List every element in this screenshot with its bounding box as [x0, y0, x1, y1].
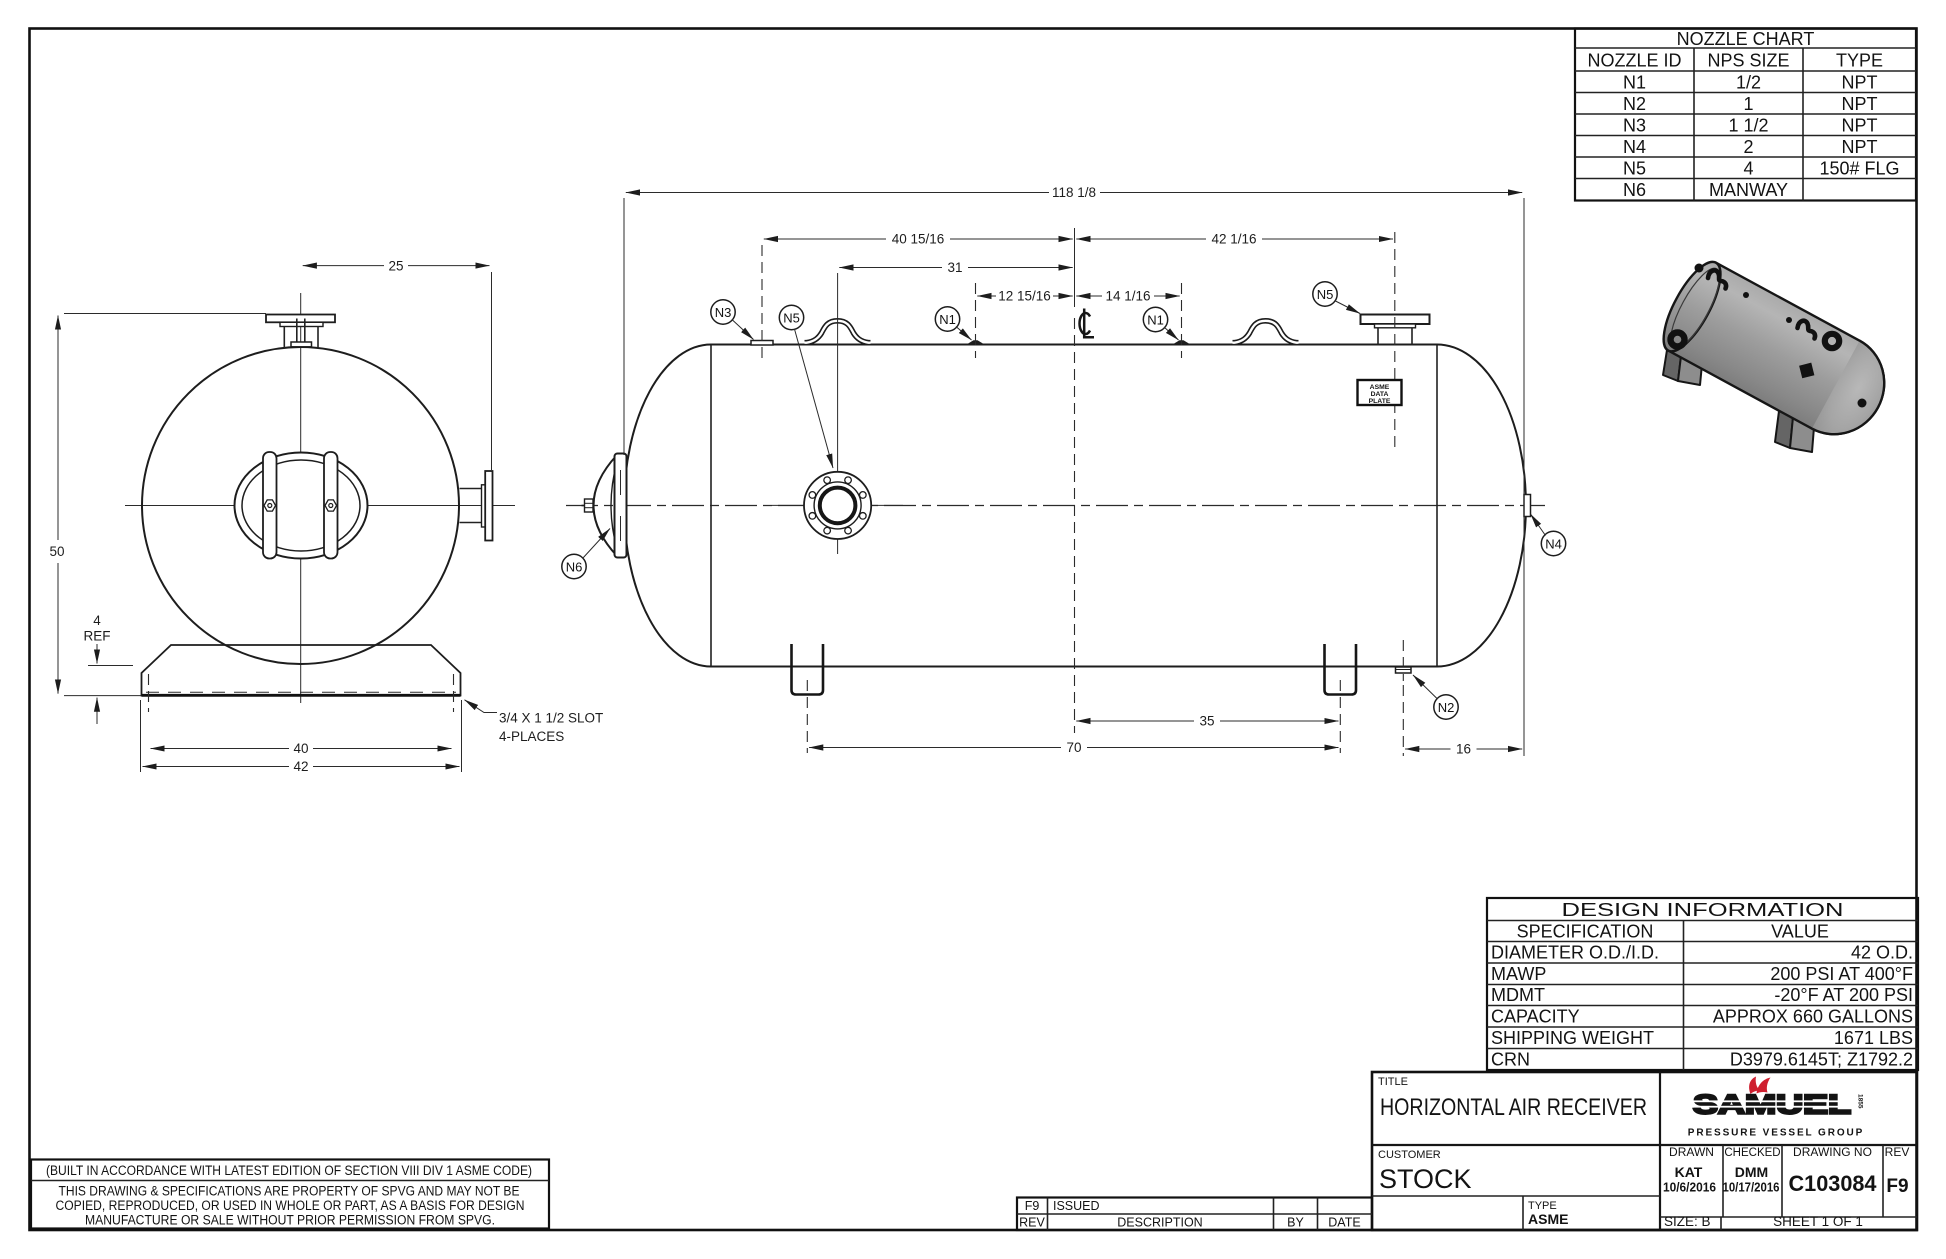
svg-text:REV: REV — [1019, 1216, 1045, 1230]
svg-text:16: 16 — [1456, 742, 1471, 757]
svg-text:SHEET 1 OF 1: SHEET 1 OF 1 — [1773, 1214, 1863, 1229]
svg-text:MAWP: MAWP — [1491, 964, 1546, 984]
svg-text:N3: N3 — [1623, 116, 1646, 136]
svg-text:DIAMETER O.D./I.D.: DIAMETER O.D./I.D. — [1491, 943, 1659, 963]
svg-text:(BUILT IN ACCORDANCE WITH LATE: (BUILT IN ACCORDANCE WITH LATEST EDITION… — [46, 1163, 532, 1178]
svg-text:N1: N1 — [939, 312, 956, 327]
svg-text:1: 1 — [1743, 94, 1753, 114]
svg-text:DRAWING NO: DRAWING NO — [1793, 1145, 1872, 1159]
svg-text:BY: BY — [1287, 1216, 1304, 1230]
svg-text:31: 31 — [947, 260, 962, 275]
svg-text:CHECKED: CHECKED — [1724, 1147, 1780, 1159]
svg-text:N1: N1 — [1147, 312, 1164, 327]
svg-text:3/4 X 1 1/2 SLOT: 3/4 X 1 1/2 SLOT — [499, 711, 603, 726]
svg-text:NPT: NPT — [1842, 94, 1878, 114]
svg-text:14 1/16: 14 1/16 — [1105, 289, 1150, 304]
svg-text:SAMUEL: SAMUEL — [1693, 1090, 1851, 1120]
svg-text:MDMT: MDMT — [1491, 985, 1545, 1005]
svg-text:CUSTOMER: CUSTOMER — [1378, 1149, 1441, 1161]
svg-text:APPROX 660 GALLONS: APPROX 660 GALLONS — [1713, 1007, 1913, 1027]
svg-text:NPT: NPT — [1842, 137, 1878, 157]
svg-text:N5: N5 — [1623, 159, 1646, 179]
svg-text:CAPACITY: CAPACITY — [1491, 1007, 1580, 1027]
svg-text:N3: N3 — [715, 305, 732, 320]
svg-text:ISSUED: ISSUED — [1053, 1199, 1100, 1213]
svg-text:TITLE: TITLE — [1378, 1076, 1408, 1088]
svg-text:N4: N4 — [1623, 137, 1646, 157]
svg-text:N4: N4 — [1545, 536, 1562, 551]
svg-text:REV: REV — [1885, 1145, 1910, 1159]
svg-text:2: 2 — [1743, 137, 1753, 157]
svg-text:F9: F9 — [1886, 1176, 1908, 1197]
svg-text:40: 40 — [293, 741, 308, 756]
svg-text:NPT: NPT — [1842, 73, 1878, 93]
svg-text:42 1/16: 42 1/16 — [1211, 232, 1256, 247]
svg-text:DATE: DATE — [1328, 1216, 1360, 1230]
svg-text:STOCK: STOCK — [1379, 1164, 1472, 1194]
svg-text:REF: REF — [84, 629, 111, 644]
svg-text:DATA: DATA — [1371, 391, 1389, 398]
svg-text:SPECIFICATION: SPECIFICATION — [1517, 922, 1654, 942]
svg-text:ASME: ASME — [1370, 384, 1390, 391]
svg-text:10/17/2016: 10/17/2016 — [1723, 1181, 1780, 1195]
svg-text:1855: 1855 — [1857, 1094, 1864, 1109]
svg-text:118 1/8: 118 1/8 — [1052, 185, 1096, 200]
svg-text:NOZZLE ID: NOZZLE ID — [1587, 51, 1681, 71]
svg-text:40 15/16: 40 15/16 — [892, 232, 945, 247]
svg-text:NPS SIZE: NPS SIZE — [1707, 51, 1789, 71]
svg-text:SHIPPING WEIGHT: SHIPPING WEIGHT — [1491, 1028, 1654, 1048]
svg-text:10/6/2016: 10/6/2016 — [1663, 1181, 1716, 1195]
svg-text:N1: N1 — [1623, 73, 1646, 93]
svg-text:NOZZLE CHART: NOZZLE CHART — [1677, 29, 1815, 49]
svg-text:4: 4 — [93, 613, 101, 628]
svg-text:1671 LBS: 1671 LBS — [1834, 1028, 1913, 1048]
svg-text:MANUFACTURE OR SALE WITHOUT PR: MANUFACTURE OR SALE WITHOUT PRIOR PERMIS… — [85, 1213, 495, 1228]
svg-text:N2: N2 — [1438, 700, 1455, 715]
svg-text:ASME: ASME — [1528, 1211, 1568, 1227]
svg-text:4: 4 — [1743, 159, 1753, 179]
svg-text:-20°F AT 200 PSI: -20°F AT 200 PSI — [1774, 985, 1913, 1005]
svg-text:4-PLACES: 4-PLACES — [499, 729, 564, 744]
svg-text:CRN: CRN — [1491, 1050, 1530, 1070]
svg-text:TYPE: TYPE — [1836, 51, 1883, 71]
svg-text:1 1/2: 1 1/2 — [1728, 116, 1768, 136]
svg-text:PLATE: PLATE — [1369, 398, 1391, 405]
svg-text:35: 35 — [1199, 714, 1214, 729]
svg-text:1/2: 1/2 — [1736, 73, 1761, 93]
svg-text:70: 70 — [1066, 740, 1081, 755]
svg-text:VALUE: VALUE — [1771, 922, 1829, 942]
svg-text:HORIZONTAL AIR RECEIVER: HORIZONTAL AIR RECEIVER — [1380, 1094, 1647, 1121]
svg-text:N5: N5 — [783, 310, 800, 325]
svg-text:DMM: DMM — [1735, 1164, 1768, 1180]
svg-text:C103084: C103084 — [1789, 1171, 1878, 1196]
svg-text:DESIGN INFORMATION: DESIGN INFORMATION — [1562, 900, 1844, 920]
svg-text:42: 42 — [293, 759, 308, 774]
svg-text:DRAWN: DRAWN — [1669, 1145, 1714, 1159]
svg-text:25: 25 — [388, 258, 403, 273]
svg-text:DESCRIPTION: DESCRIPTION — [1117, 1216, 1202, 1230]
svg-text:KAT: KAT — [1675, 1164, 1703, 1180]
svg-text:42 O.D.: 42 O.D. — [1851, 943, 1913, 963]
svg-text:200 PSI AT 400°F: 200 PSI AT 400°F — [1770, 964, 1913, 984]
svg-text:SIZE: B: SIZE: B — [1664, 1214, 1711, 1229]
svg-text:12 15/16: 12 15/16 — [998, 289, 1051, 304]
svg-text:150# FLG: 150# FLG — [1819, 159, 1899, 179]
svg-text:NPT: NPT — [1842, 116, 1878, 136]
svg-text:N5: N5 — [1317, 287, 1334, 302]
svg-text:50: 50 — [49, 544, 64, 559]
svg-text:N6: N6 — [1623, 180, 1646, 200]
svg-text:D3979.6145T; Z1792.2: D3979.6145T; Z1792.2 — [1730, 1050, 1913, 1070]
svg-text:PRESSURE VESSEL GROUP: PRESSURE VESSEL GROUP — [1688, 1128, 1864, 1139]
svg-text:MANWAY: MANWAY — [1709, 180, 1788, 200]
svg-text:COPIED, REPRODUCED, OR USED IN: COPIED, REPRODUCED, OR USED IN WHOLE OR … — [56, 1198, 525, 1213]
svg-text:N2: N2 — [1623, 94, 1646, 114]
svg-text:F9: F9 — [1025, 1199, 1040, 1213]
svg-text:THIS DRAWING & SPECIFICATIONS: THIS DRAWING & SPECIFICATIONS ARE PROPER… — [59, 1184, 520, 1199]
svg-text:N6: N6 — [566, 559, 583, 574]
